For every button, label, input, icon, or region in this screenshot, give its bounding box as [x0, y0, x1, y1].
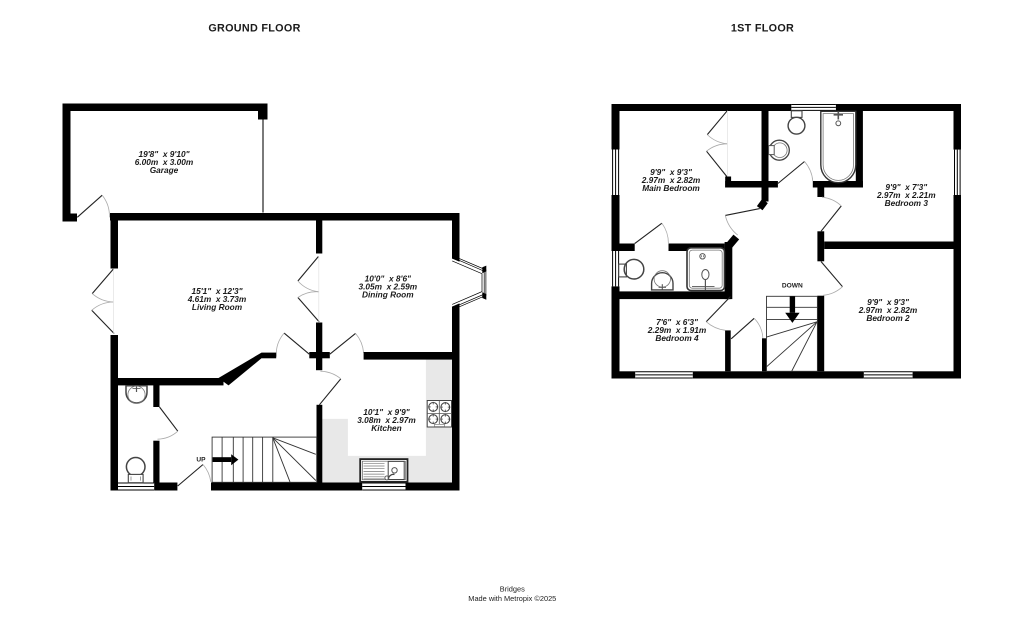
svg-text:Main Bedroom: Main Bedroom — [642, 183, 700, 193]
svg-text:Bridges: Bridges — [500, 585, 525, 594]
svg-text:Bedroom 3: Bedroom 3 — [885, 198, 929, 208]
svg-text:Bedroom 2: Bedroom 2 — [866, 313, 910, 323]
svg-text:Living Room: Living Room — [192, 302, 243, 312]
svg-text:Garage: Garage — [150, 165, 179, 175]
svg-text:Kitchen: Kitchen — [371, 423, 401, 433]
svg-text:GROUND FLOOR: GROUND FLOOR — [208, 23, 300, 35]
svg-text:Made with Metropix ©2025: Made with Metropix ©2025 — [468, 594, 556, 603]
svg-text:1ST FLOOR: 1ST FLOOR — [731, 23, 794, 35]
svg-text:Dining Room: Dining Room — [362, 290, 414, 300]
svg-text:Bedroom 4: Bedroom 4 — [655, 333, 699, 343]
svg-text:UP: UP — [196, 456, 206, 463]
svg-text:DOWN: DOWN — [782, 282, 803, 289]
